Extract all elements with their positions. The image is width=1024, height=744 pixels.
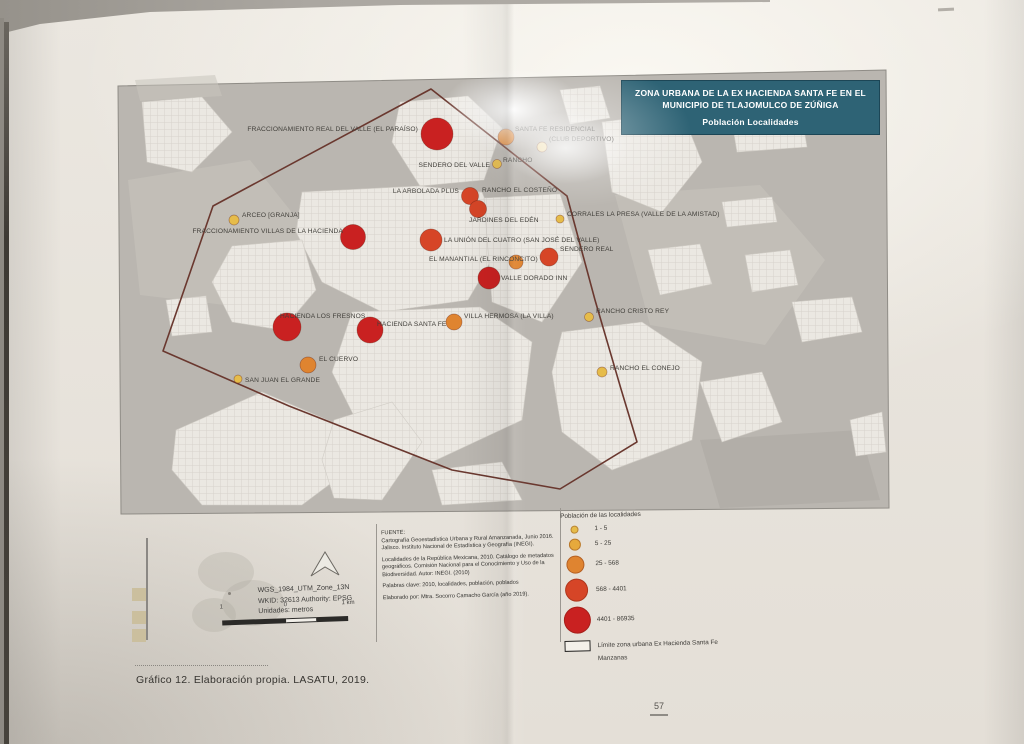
scale-bar: 1 0 1 km (222, 600, 363, 631)
locality-dot (493, 160, 502, 169)
source-paragraph: Cartografía Geoestadística Urbana y Rura… (381, 533, 557, 553)
locality-label: CORRALES LA PRESA (VALLE DE LA AMISTAD) (567, 211, 720, 218)
legend-item: 4401 - 86935 (562, 598, 793, 636)
scale-label: 0 (284, 602, 288, 608)
scale-label: 1 km (342, 600, 355, 606)
legend-label: 25 - 568 (595, 560, 619, 568)
locality-label: HACIENDA LOS FRESNOS (280, 313, 366, 320)
map-title-box: ZONA URBANA DE LA EX HACIENDA SANTA FE E… (621, 80, 880, 135)
locality-dot (229, 215, 239, 225)
locality-label: VALLE DORADO INN (501, 275, 567, 282)
legend-label: 4401 - 86935 (597, 615, 635, 623)
legend-dot (569, 538, 581, 550)
locality-dot (498, 129, 514, 145)
source-paragraph: Elaborado por: Mtra. Socorro Camacho Gar… (383, 591, 559, 603)
map-subtitle: Población Localidades (622, 117, 879, 127)
page-number-rule (650, 714, 668, 716)
source-paragraph: Localidades de la República Mexicana, 20… (382, 552, 559, 579)
locality-label: SAN JUAN EL GRANDE (245, 377, 320, 384)
map-title: ZONA URBANA DE LA EX HACIENDA SANTA FE E… (622, 87, 879, 112)
locality-label: EL MANANTIAL (EL RINCONCITO) (429, 256, 538, 263)
locality-label: SENDERO REAL (560, 246, 614, 253)
locality-dot (446, 314, 462, 330)
locality-label: (CLUB DEPORTIVO) (549, 136, 614, 143)
caption-rule (135, 665, 268, 666)
locality-dot (478, 267, 500, 289)
margin-square (132, 611, 146, 624)
locality-label: LA UNIÓN DEL CUATRO (SAN JOSÉ DEL VALLE) (444, 235, 600, 244)
locality-label: SENDERO DEL VALLE (419, 162, 491, 169)
locality-dot (420, 229, 442, 251)
locality-dot (556, 215, 564, 223)
locality-dot (470, 201, 487, 218)
locality-label: RANCHO EL COSTEÑO (482, 185, 557, 194)
legend-label: 568 - 4401 (596, 585, 627, 593)
map-legend: Población de las localidades 1 - 55 - 25… (560, 507, 794, 663)
legend-dot (570, 525, 578, 533)
legend-dot (566, 555, 584, 573)
locality-label: RANCHO EL CONEJO (610, 365, 680, 372)
legend-label: 5 - 25 (595, 540, 612, 547)
margin-rule (146, 538, 148, 640)
footer-divider (376, 524, 377, 642)
scale-bar-segments (222, 616, 348, 625)
locality-label: FRACCIONAMIENTO VILLAS DE LA HACIENDA (192, 228, 343, 235)
locality-label: EL CUERVO (319, 356, 358, 363)
source-paragraph: Palabras clave: 2010, localidades, pobla… (382, 579, 558, 591)
legend-boundary-label: Límite zona urbana Ex Hacienda Santa Fe (597, 639, 718, 649)
photographed-book-page: FRACCIONAMIENTO REAL DEL VALLE (EL PARAÍ… (0, 0, 1024, 744)
page-number: 57 (648, 701, 670, 711)
locality-label: HACIENDA SANTA FE (377, 321, 447, 328)
locality-dot (341, 225, 366, 250)
locality-dot (585, 313, 594, 322)
figure-caption: Gráfico 12. Elaboración propia. LASATU, … (136, 674, 369, 686)
locality-dot (540, 248, 558, 266)
scale-label: 1 (220, 604, 224, 610)
locality-label: LA ARBOLADA PLUS (393, 188, 460, 195)
locality-label: FRACCIONAMIENTO REAL DEL VALLE (EL PARAÍ… (247, 124, 418, 133)
locality-dot (597, 367, 607, 377)
locality-dot (421, 118, 453, 150)
locality-label: RANCHO CRISTO REY (596, 308, 670, 315)
legend-boundary-symbol (564, 640, 590, 652)
north-arrow-icon (311, 552, 339, 576)
locality-label: RANCHO (503, 157, 532, 164)
inset-map-marker (228, 592, 231, 595)
locality-label: VILLA HERMOSA (LA VILLA) (464, 313, 554, 320)
margin-square (132, 588, 146, 601)
locality-label: SANTA FE RESIDENCIAL (515, 126, 595, 133)
locality-dot (300, 357, 316, 373)
source-block: FUENTE: Cartografía Geoestadística Urban… (381, 526, 559, 607)
locality-dot (234, 375, 242, 383)
legend-label: 1 - 5 (594, 525, 607, 532)
locality-dot (537, 142, 547, 152)
locality-label: JARDINES DEL EDÉN (469, 215, 539, 224)
margin-square (132, 629, 146, 642)
legend-dot (564, 578, 588, 602)
legend-dot (563, 606, 591, 634)
locality-label: ARCEO [GRANJA] (242, 212, 300, 219)
